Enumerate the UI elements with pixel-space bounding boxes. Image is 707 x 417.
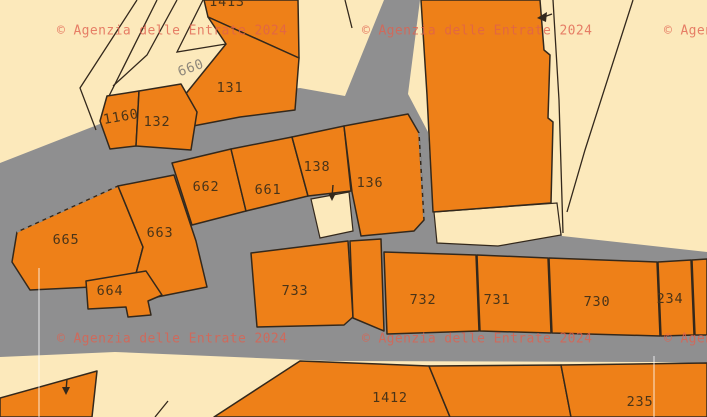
parcel-label-1412: 1412 <box>372 390 408 406</box>
cadastral-map-canvas[interactable]: 1413131116013266266113813666566366473373… <box>0 0 707 417</box>
parcel-sliver-right-edge[interactable] <box>692 259 707 335</box>
copyright-watermark-1: © Agenzia delle Entrate 2024 <box>362 24 592 39</box>
parcel-label-730: 730 <box>584 294 611 310</box>
copyright-watermark-0: © Agenzia delle Entrate 2024 <box>57 24 287 39</box>
parcel-label-733: 733 <box>282 283 309 299</box>
parcel-label-234: 234 <box>657 291 684 307</box>
copyright-watermark-3: © Agenzia delle Entrate 2024 <box>57 332 287 347</box>
parcel-label-663: 663 <box>147 225 174 241</box>
parcel-label-731: 731 <box>484 292 511 308</box>
copyright-watermark-2: © Agenzia delle Entrate 2024 <box>664 24 707 39</box>
parcel-label-1413: 1413 <box>209 0 245 10</box>
parcel-label-665: 665 <box>53 232 80 248</box>
cadastral-map-viewport[interactable]: 1413131116013266266113813666566366473373… <box>0 0 707 417</box>
copyright-watermark-4: © Agenzia delle Entrate 2024 <box>362 332 592 347</box>
parcel-label-732: 732 <box>410 292 437 308</box>
parcel-mid-bottom-unlabeled[interactable] <box>429 365 571 417</box>
parcel-label-132: 132 <box>144 114 171 130</box>
parcel-label-136: 136 <box>357 175 384 191</box>
parcel-label-664: 664 <box>97 283 124 299</box>
copyright-watermark-5: © Agenzia delle Entrate 2024 <box>664 332 707 347</box>
parcel-label-131: 131 <box>217 80 244 96</box>
parcel-label-138: 138 <box>304 159 331 175</box>
parcel-label-235: 235 <box>627 394 654 410</box>
parcel-sliver-733-732[interactable] <box>350 239 384 331</box>
parcel-label-661: 661 <box>255 182 282 198</box>
parcel-label-662: 662 <box>193 179 220 195</box>
